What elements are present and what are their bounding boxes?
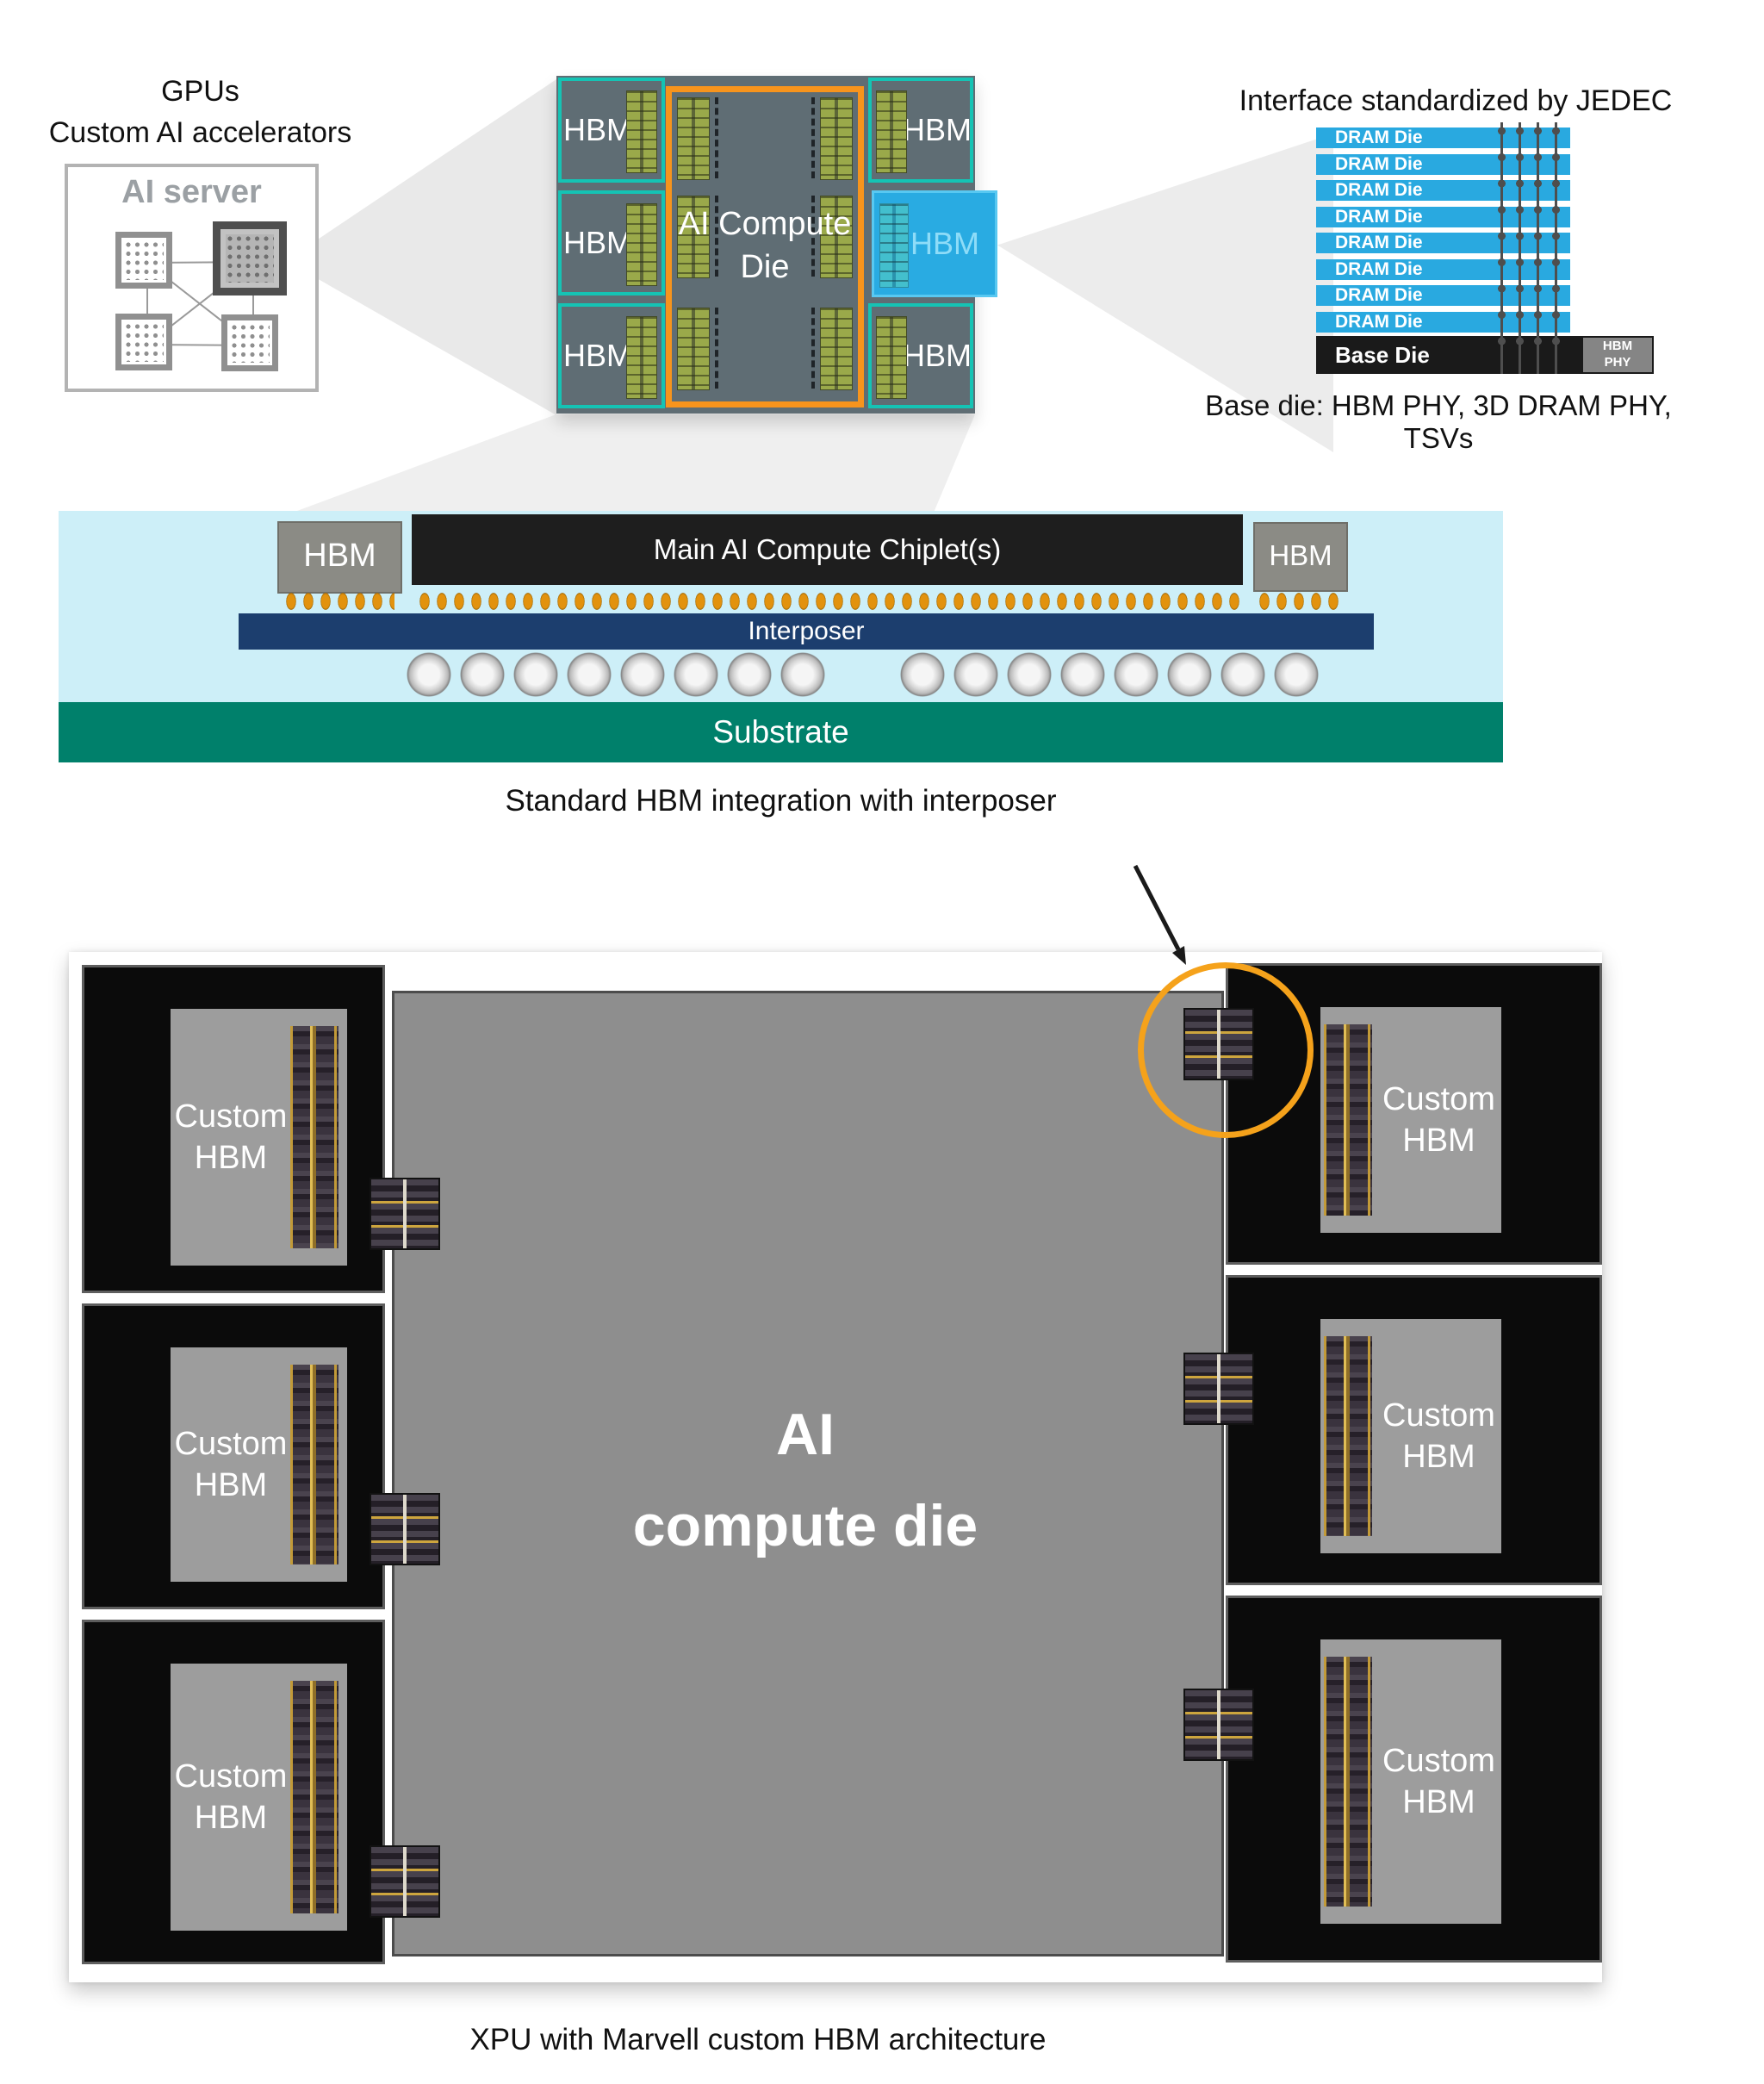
custom-hbm-die: CustomHBM [1320, 1639, 1501, 1924]
hbm-block: HBM [868, 78, 973, 183]
solder-balls-row [402, 650, 830, 700]
custom-hbm-die: CustomHBM [171, 1009, 347, 1266]
custom-hbm-label: CustomHBM [171, 1096, 291, 1179]
hbm-label: HBM [563, 112, 629, 148]
xpu-caption: XPU with Marvell custom HBM architecture [69, 2023, 1447, 2057]
substrate-bar: Substrate [59, 702, 1503, 762]
chip-icon-highlighted [213, 221, 287, 295]
interposer-bar: Interposer [239, 613, 1374, 650]
custom-hbm-label: CustomHBM [1376, 1740, 1501, 1823]
custom-hbm-interface-strip [290, 1681, 339, 1913]
hbm-phy-strip [626, 203, 657, 286]
ai-compute-die-outline: AI Compute Die [666, 86, 864, 407]
custom-hbm-package: CustomHBM [82, 1303, 385, 1609]
hbm-label: HBM [563, 225, 629, 261]
custom-hbm-interface-strip [1324, 1657, 1372, 1907]
accelerator-package: HBM HBM HBM HBM HBM [556, 76, 975, 414]
hbm-label: HBM [903, 112, 968, 148]
die-tsv-dashes [715, 308, 718, 389]
custom-hbm-interface-strip [290, 1365, 339, 1565]
die-phy-strip [677, 308, 710, 390]
die-to-die-connector [1183, 1689, 1254, 1761]
hbm-block: HBM [558, 78, 665, 183]
hbm-phy-strip [626, 316, 657, 399]
custom-hbm-label: CustomHBM [1376, 1079, 1501, 1161]
ai-compute-die-large-label: AI compute die [392, 1389, 1219, 1571]
jedec-title: Interface standardized by JEDEC [1206, 84, 1705, 118]
die-tsv-dashes [811, 97, 815, 178]
custom-hbm-label: CustomHBM [171, 1423, 291, 1506]
tsv-dots [1493, 122, 1565, 346]
custom-hbm-label: CustomHBM [171, 1756, 291, 1838]
hbm-label: HBM [903, 338, 968, 374]
hbm-label: HBM [563, 338, 629, 374]
chip-die-grid [124, 322, 164, 362]
hbm-label: HBM [904, 226, 986, 262]
die-to-die-connector [370, 1845, 440, 1918]
hbm-block-highlighted: HBM [872, 190, 997, 297]
gpu-caption-line1: GPUs [26, 71, 375, 112]
hbm-block: HBM [558, 303, 665, 408]
ai-compute-die-label: AI Compute Die [672, 202, 858, 289]
hbm-phy-strip [876, 90, 907, 173]
custom-hbm-package: CustomHBM [82, 1620, 385, 1964]
gpu-caption: GPUs Custom AI accelerators [26, 71, 375, 153]
custom-hbm-label: CustomHBM [1376, 1395, 1501, 1477]
die-phy-strip [820, 308, 853, 390]
die-phy-strip [677, 97, 710, 180]
custom-hbm-interface-strip [1324, 1024, 1372, 1216]
microbumps-row [283, 590, 394, 613]
custom-hbm-package: CustomHBM [1226, 1275, 1602, 1585]
chip-icon [221, 314, 278, 371]
custom-hbm-die: CustomHBM [171, 1664, 347, 1931]
custom-hbm-die: CustomHBM [1320, 1319, 1501, 1553]
pointer-arrow [1111, 853, 1232, 982]
microbumps-row [1256, 590, 1345, 613]
hbm-block: HBM [868, 303, 973, 408]
highlight-circle [1138, 962, 1314, 1138]
crosssection-hbm-right: HBM [1253, 522, 1348, 592]
solder-balls-row [896, 650, 1324, 700]
main-compute-chiplet: Main AI Compute Chiplet(s) [412, 514, 1243, 585]
die-tsv-dashes [715, 97, 718, 178]
die-tsv-dashes [811, 308, 815, 389]
hbm-phy-box: HBM PHY [1583, 338, 1652, 372]
figure-canvas: GPUs Custom AI accelerators AI server HB… [0, 0, 1764, 2084]
jedec-caption: Base die: HBM PHY, 3D DRAM PHY, TSVs [1171, 389, 1705, 455]
hbm-block: HBM [558, 190, 665, 295]
hbm-phy-strip [626, 90, 657, 173]
custom-hbm-interface-strip [290, 1026, 339, 1248]
chip-die-grid [124, 240, 164, 280]
die-to-die-connector [370, 1493, 440, 1565]
hbm-phy-strip [876, 316, 907, 399]
crosssection-caption: Standard HBM integration with interposer [59, 784, 1503, 818]
die-to-die-connector [1183, 1353, 1254, 1425]
custom-hbm-die: CustomHBM [1320, 1007, 1501, 1233]
gpu-caption-line2: Custom AI accelerators [26, 112, 375, 153]
chip-die-grid [226, 234, 274, 283]
crosssection-hbm-left: HBM [277, 521, 402, 594]
die-to-die-connector [370, 1178, 440, 1250]
die-phy-strip [820, 97, 853, 180]
custom-hbm-package: CustomHBM [82, 965, 385, 1293]
chip-icon [115, 314, 172, 370]
custom-hbm-package: CustomHBM [1226, 1596, 1602, 1963]
chip-die-grid [230, 323, 270, 363]
custom-hbm-die: CustomHBM [171, 1347, 347, 1582]
zoom-beam-chip-to-crosssection [297, 414, 975, 511]
custom-hbm-interface-strip [1324, 1336, 1372, 1536]
microbumps-row [416, 590, 1243, 613]
chip-icon [115, 232, 172, 289]
